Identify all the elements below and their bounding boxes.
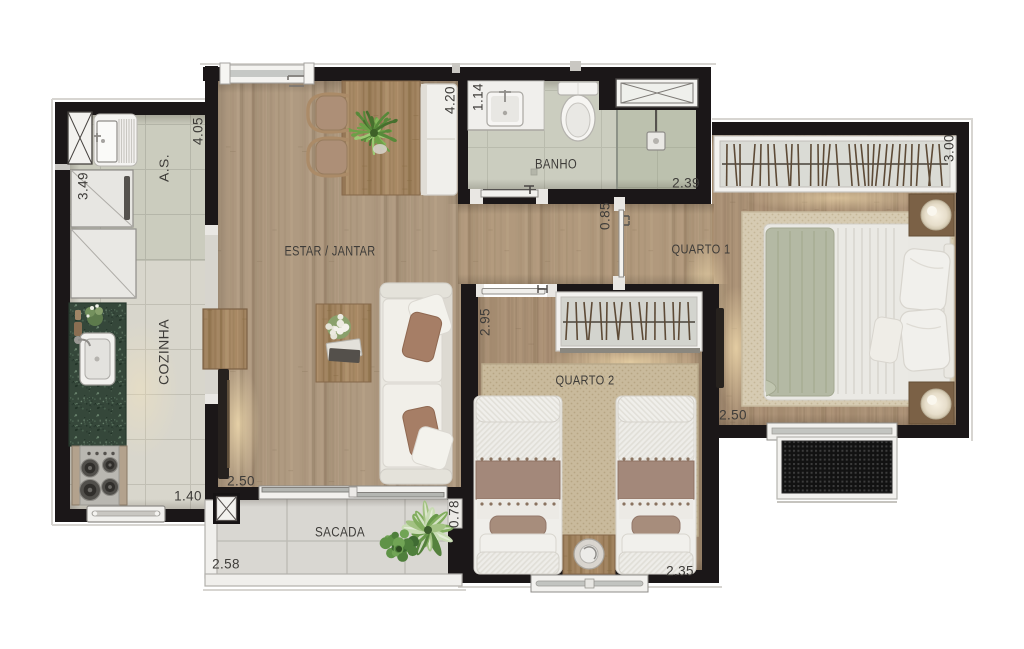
svg-text:1.40: 1.40: [174, 489, 202, 504]
svg-text:3.00: 3.00: [942, 134, 957, 162]
svg-text:BANHO: BANHO: [535, 157, 577, 172]
svg-text:QUARTO 2: QUARTO 2: [556, 373, 615, 388]
svg-text:4.05: 4.05: [191, 117, 206, 145]
svg-text:2.58: 2.58: [212, 557, 240, 572]
svg-text:QUARTO 1: QUARTO 1: [672, 242, 731, 257]
svg-text:0.85: 0.85: [598, 202, 613, 230]
svg-text:2.39: 2.39: [672, 176, 700, 191]
svg-text:COZINHA: COZINHA: [157, 319, 172, 385]
svg-text:A.S.: A.S.: [157, 154, 172, 182]
svg-text:ESTAR / JANTAR: ESTAR / JANTAR: [285, 244, 376, 259]
svg-text:0.78: 0.78: [447, 500, 462, 528]
svg-text:2.50: 2.50: [719, 408, 747, 423]
svg-text:4.20: 4.20: [443, 86, 458, 114]
svg-text:2.35: 2.35: [666, 564, 694, 579]
svg-text:3.49: 3.49: [76, 172, 91, 200]
svg-text:2.95: 2.95: [478, 308, 493, 336]
svg-text:2.50: 2.50: [227, 474, 255, 489]
svg-text:SACADA: SACADA: [315, 525, 365, 540]
svg-text:1.14: 1.14: [471, 83, 486, 111]
